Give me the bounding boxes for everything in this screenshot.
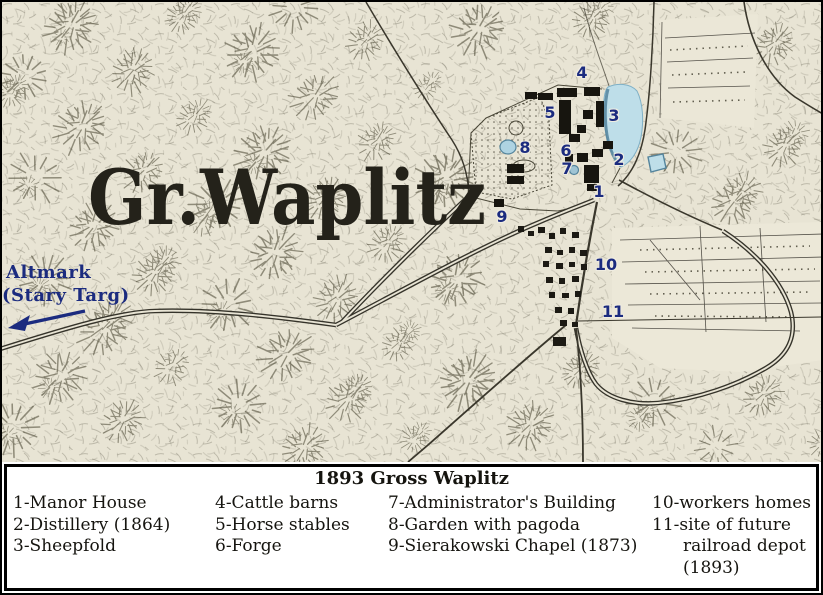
annotated-historic-map-page: Gr.Waplitz Altmark (Stary Targ) 12345678… xyxy=(0,0,823,595)
legend-item-3: 3-Sheepfold xyxy=(13,536,170,558)
map-marker-4: 4 xyxy=(576,65,587,81)
legend-area: 1893 Gross Waplitz 1-Manor House 2-Disti… xyxy=(2,462,821,593)
map-image: Gr.Waplitz Altmark (Stary Targ) 12345678… xyxy=(2,2,821,462)
map-marker-7: 7 xyxy=(561,161,572,177)
legend-item-11-line3: (1893) xyxy=(652,558,811,580)
legend-item-1: 1-Manor House xyxy=(13,493,170,515)
legend-item-9: 9-Sierakowski Chapel (1873) xyxy=(388,536,637,558)
marker-layer: 1234567891011 xyxy=(2,2,821,462)
legend-title: 1893 Gross Waplitz xyxy=(7,468,816,489)
map-marker-3: 3 xyxy=(608,108,619,124)
map-marker-10: 10 xyxy=(595,257,617,273)
legend-panel: 1893 Gross Waplitz 1-Manor House 2-Disti… xyxy=(4,464,819,591)
map-marker-9: 9 xyxy=(496,209,507,225)
legend-item-8: 8-Garden with pagoda xyxy=(388,515,637,537)
legend-item-11-line2: railroad depot xyxy=(652,536,811,558)
legend-column-3: 7-Administrator's Building 8-Garden with… xyxy=(388,493,637,558)
legend-item-5: 5-Horse stables xyxy=(215,515,350,537)
map-marker-2: 2 xyxy=(613,152,624,168)
legend-item-11-line1: 11-site of future xyxy=(652,515,811,537)
legend-column-4: 10-workers homes 11-site of future railr… xyxy=(652,493,811,579)
map-marker-11: 11 xyxy=(602,304,624,320)
legend-column-1: 1-Manor House 2-Distillery (1864) 3-Shee… xyxy=(13,493,170,558)
legend-item-6: 6-Forge xyxy=(215,536,350,558)
map-marker-6: 6 xyxy=(560,143,571,159)
legend-item-4: 4-Cattle barns xyxy=(215,493,350,515)
map-marker-8: 8 xyxy=(519,140,530,156)
map-marker-1: 1 xyxy=(593,184,604,200)
legend-item-10: 10-workers homes xyxy=(652,493,811,515)
map-marker-5: 5 xyxy=(544,105,555,121)
legend-item-2: 2-Distillery (1864) xyxy=(13,515,170,537)
legend-item-7: 7-Administrator's Building xyxy=(388,493,637,515)
legend-column-2: 4-Cattle barns 5-Horse stables 6-Forge xyxy=(215,493,350,558)
